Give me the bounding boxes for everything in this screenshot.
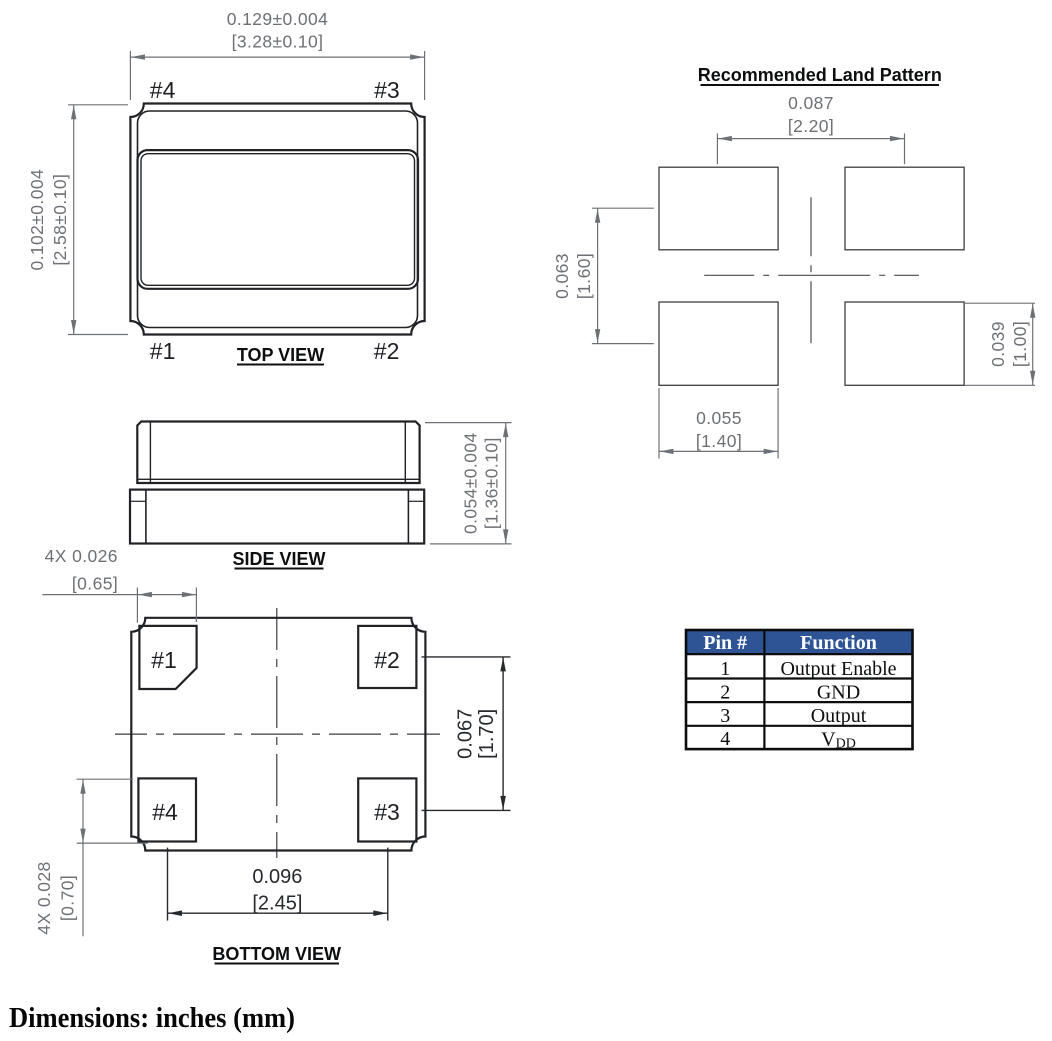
svg-text:Recommended Land Pattern: Recommended Land Pattern [698,65,942,85]
svg-text:Pin #: Pin # [703,632,747,654]
svg-text:#1: #1 [151,647,177,673]
svg-text:#4: #4 [152,799,178,825]
svg-text:4: 4 [720,728,730,750]
svg-text:0.096: 0.096 [252,866,302,888]
svg-text:0.063: 0.063 [552,253,572,299]
svg-text:0.102±0.004: 0.102±0.004 [27,169,47,271]
svg-text:BOTTOM VIEW: BOTTOM VIEW [212,944,341,964]
svg-text:2: 2 [720,682,730,704]
svg-text:[1.36±0.10]: [1.36±0.10] [482,437,502,529]
svg-text:[2.58±0.10]: [2.58±0.10] [50,174,70,266]
svg-text:[1.70]: [1.70] [476,709,498,759]
svg-text:[0.70]: [0.70] [57,875,77,921]
svg-text:Output Enable: Output Enable [780,658,896,680]
svg-text:0.067: 0.067 [455,709,477,759]
svg-text:[1.40]: [1.40] [696,431,742,451]
svg-text:0.055: 0.055 [696,408,742,428]
svg-text:#3: #3 [374,77,400,103]
svg-text:3: 3 [720,705,730,727]
svg-text:[0.65]: [0.65] [72,574,118,594]
svg-text:Function: Function [800,632,877,654]
svg-text:#1: #1 [150,338,176,364]
svg-text:4X 0.026: 4X 0.026 [45,546,118,566]
svg-text:#4: #4 [150,77,176,103]
svg-text:Dimensions: inches (mm): Dimensions: inches (mm) [9,1003,295,1034]
svg-text:1: 1 [720,658,730,680]
svg-text:TOP VIEW: TOP VIEW [237,345,324,365]
svg-text:[2.45]: [2.45] [252,893,302,915]
svg-text:#2: #2 [374,338,400,364]
svg-text:[1.60]: [1.60] [574,253,594,299]
svg-text:GND: GND [817,682,860,704]
svg-text:#2: #2 [374,647,400,673]
svg-text:0.054±0.004: 0.054±0.004 [461,432,481,534]
svg-text:#3: #3 [374,799,400,825]
svg-text:[3.28±0.10]: [3.28±0.10] [232,32,324,52]
svg-text:4X 0.028: 4X 0.028 [34,861,54,934]
svg-text:VDD: VDD [821,729,856,752]
svg-text:SIDE VIEW: SIDE VIEW [232,549,325,569]
svg-text:[2.20]: [2.20] [788,116,834,136]
svg-text:0.129±0.004: 0.129±0.004 [227,9,329,29]
svg-text:0.087: 0.087 [788,93,834,113]
svg-text:0.039: 0.039 [988,321,1008,367]
svg-text:Output: Output [811,705,867,727]
svg-text:[1.00]: [1.00] [1010,321,1030,367]
